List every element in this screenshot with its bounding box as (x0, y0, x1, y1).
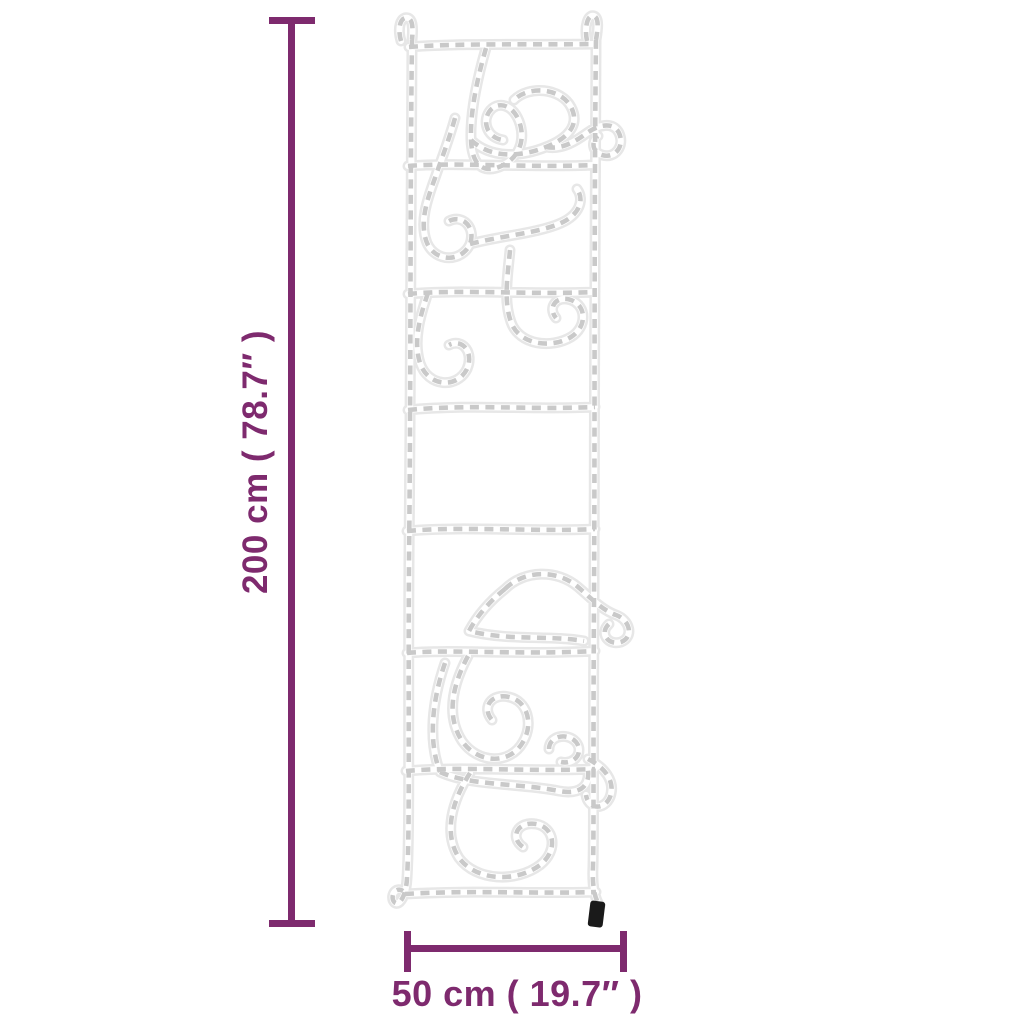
width-dimension-cap-right (620, 931, 627, 972)
height-dimension-cap-bottom (269, 920, 315, 927)
height-dimension-line (288, 17, 295, 927)
height-dimension-label: 200 cm ( 78.7″ ) (234, 292, 278, 632)
width-dimension-line (404, 945, 627, 952)
height-dimension-cap-top (269, 17, 315, 24)
product-dimension-image: 200 cm ( 78.7″ ) 50 cm ( 19.7″ ) (0, 0, 1024, 1024)
rope-light-ladder-figure (0, 0, 1024, 1024)
width-dimension-label: 50 cm ( 19.7″ ) (357, 972, 677, 1016)
width-dimension-cap-left (404, 931, 411, 972)
power-plug (587, 900, 605, 928)
